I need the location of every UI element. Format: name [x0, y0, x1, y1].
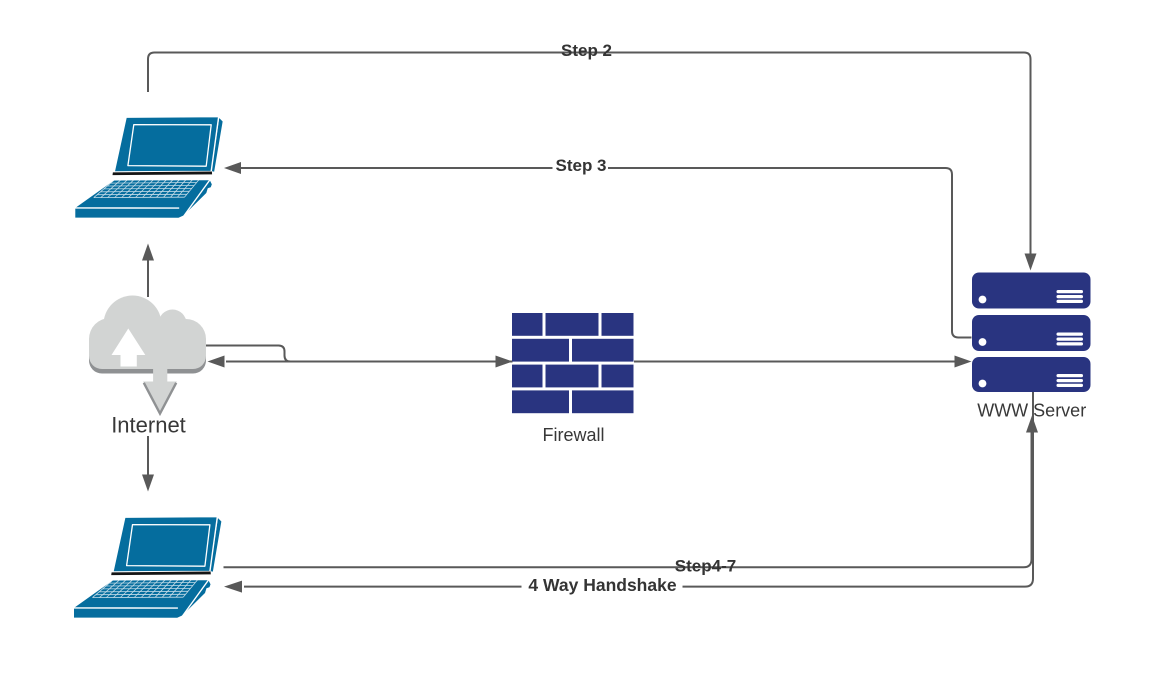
svg-text:Step4-7: Step4-7 — [675, 557, 736, 576]
svg-text:WWW Server: WWW Server — [977, 401, 1086, 421]
svg-text:Internet: Internet — [111, 413, 186, 438]
svg-text:4 Way Handshake: 4 Way Handshake — [528, 575, 676, 595]
svg-text:Step 2: Step 2 — [561, 41, 612, 60]
svg-text:Step 3: Step 3 — [555, 156, 606, 175]
svg-text:Firewall: Firewall — [542, 425, 604, 445]
